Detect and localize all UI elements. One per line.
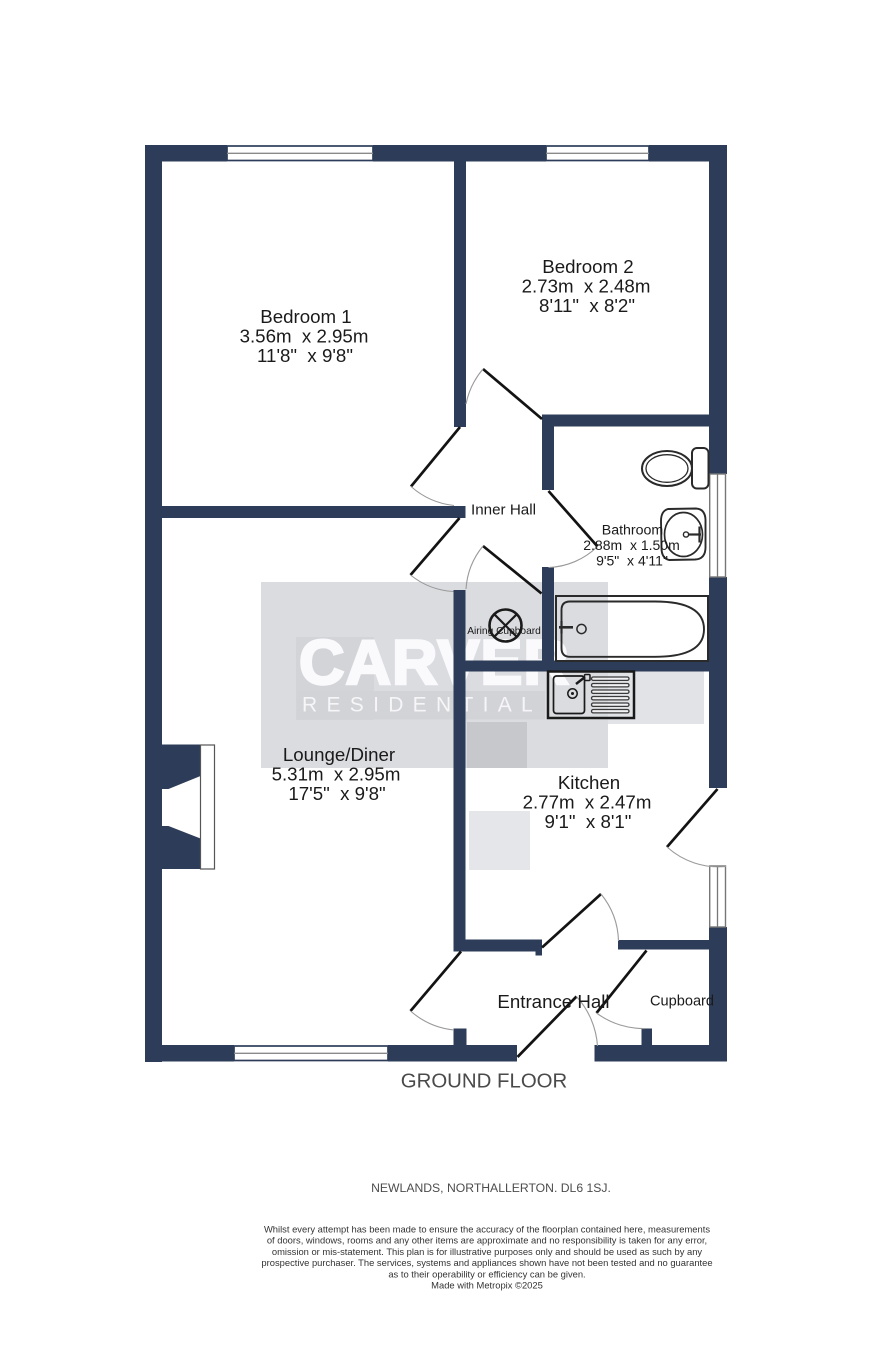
svg-text:5.31m x 2.95m: 5.31m x 2.95m [272, 764, 401, 785]
svg-text:Cupboard: Cupboard [650, 994, 714, 1010]
svg-text:2.73m x 2.48m: 2.73m x 2.48m [522, 276, 651, 297]
svg-text:9'1" x 8'1": 9'1" x 8'1" [545, 811, 632, 832]
svg-text:11'8" x 9'8": 11'8" x 9'8" [257, 345, 353, 366]
svg-text:RESIDENTIAL: RESIDENTIAL [302, 694, 542, 717]
svg-text:prospective purchaser. The ser: prospective purchaser. The services, sys… [261, 1257, 712, 1268]
svg-text:Kitchen: Kitchen [558, 772, 620, 793]
svg-text:9'5" x 4'11": 9'5" x 4'11" [596, 553, 668, 569]
svg-text:2.77m x 2.47m: 2.77m x 2.47m [523, 792, 652, 813]
svg-text:8'11" x 8'2": 8'11" x 8'2" [539, 295, 635, 316]
svg-text:Entrance Hall: Entrance Hall [497, 991, 609, 1012]
svg-text:17'5" x 9'8": 17'5" x 9'8" [288, 783, 385, 804]
svg-text:Bedroom 1: Bedroom 1 [260, 306, 351, 327]
svg-text:Made with Metropix ©2025: Made with Metropix ©2025 [431, 1280, 543, 1291]
svg-text:GROUND FLOOR: GROUND FLOOR [401, 1071, 568, 1093]
svg-text:2.88m x 1.50m: 2.88m x 1.50m [583, 537, 680, 553]
svg-text:Whilst every attempt has been: Whilst every attempt has been made to en… [264, 1224, 710, 1235]
svg-text:3.56m x 2.95m: 3.56m x 2.95m [240, 326, 369, 347]
svg-text:Lounge/Diner: Lounge/Diner [283, 744, 395, 765]
svg-text:Inner Hall: Inner Hall [471, 502, 536, 519]
svg-text:NEWLANDS, NORTHALLERTON. DL6 1: NEWLANDS, NORTHALLERTON. DL6 1SJ. [371, 1181, 611, 1195]
svg-text:omission or mis-statement. Thi: omission or mis-statement. This plan is … [272, 1246, 703, 1257]
svg-text:Airing Cupboard: Airing Cupboard [467, 626, 541, 637]
svg-text:Bedroom 2: Bedroom 2 [542, 256, 633, 277]
svg-text:of doors, windows, rooms and a: of doors, windows, rooms and any other i… [267, 1235, 707, 1246]
svg-text:as to their operability or eff: as to their operability or efficiency ca… [388, 1268, 585, 1279]
